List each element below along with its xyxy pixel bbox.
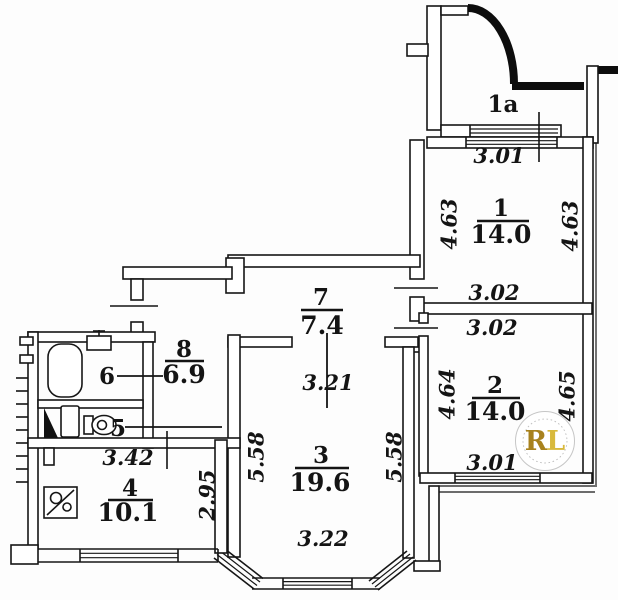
fixtures: [44, 330, 116, 518]
room2-dim-left: 4.64: [435, 368, 460, 419]
room3-dim-left: 5.58: [244, 431, 269, 483]
wall: [407, 44, 428, 56]
room1-number: 1: [493, 195, 509, 222]
wall: [427, 6, 441, 130]
hatch-bracket: [20, 355, 33, 363]
room2-dim-right: 4.65: [555, 370, 580, 421]
wall-bath-wc: [38, 400, 143, 408]
kitchen-door-leaf: [44, 448, 54, 465]
kitchen-window: [38, 549, 218, 562]
bay-chamfer-window: [214, 558, 254, 589]
room7-area: 7.4: [300, 311, 344, 340]
wall: [441, 6, 468, 15]
wall-foot: [414, 561, 440, 571]
watermark-logo: RL: [516, 412, 575, 471]
shower-tray-icon: [61, 406, 79, 437]
corridor-walls: [110, 255, 420, 347]
room1-area: 14.0: [471, 220, 532, 249]
room5-number: 5: [110, 415, 126, 442]
bay-window: [214, 548, 416, 591]
room4-area: 10.1: [98, 498, 159, 527]
neighbor-wall: [429, 486, 439, 570]
wall: [419, 336, 428, 476]
room1-dim-top: 3.01: [473, 143, 524, 168]
room3-area: 19.6: [290, 468, 351, 497]
room2-dim-bottom: 3.01: [466, 450, 517, 475]
watermark-letters: RL: [525, 426, 565, 457]
wall: [587, 66, 598, 143]
floor-plan-page: 1a 3.01 1 14.0 4.63 4.63 3.02 3.02 2 14.…: [0, 0, 618, 600]
lower-right-boundary: [414, 486, 595, 571]
balcony-number: 1a: [488, 91, 519, 118]
room2-dim-top: 3.02: [466, 315, 517, 340]
room1-dim-right: 4.63: [558, 200, 583, 251]
room3-dim-bottom: 3.22: [297, 526, 348, 551]
door-swing-shade: [44, 408, 58, 438]
wall: [228, 255, 420, 267]
room2-number: 2: [487, 372, 503, 399]
room2-area: 14.0: [465, 397, 526, 426]
balcony-curved-parapet: [468, 8, 514, 84]
room3-number: 3: [313, 442, 329, 469]
wall: [143, 342, 153, 448]
balcony-window: [441, 125, 561, 137]
wall: [123, 267, 232, 279]
room8-number: 8: [176, 336, 192, 363]
floor-plan: 1a 3.01 1 14.0 4.63 4.63 3.02 3.02 2 14.…: [0, 0, 618, 600]
wall: [131, 279, 143, 300]
room3-dim-right: 5.58: [382, 431, 407, 483]
room1-dim-bottom: 3.02: [468, 280, 519, 305]
stove-icon: [44, 487, 77, 518]
wall: [419, 313, 428, 323]
balcony-walls: [407, 6, 618, 143]
bay-chamfer-window: [223, 548, 263, 579]
hatch-bracket: [20, 337, 33, 345]
window: [441, 125, 561, 137]
corridor-dim-321: 3.21: [302, 370, 353, 395]
room1-dim-left: 4.63: [437, 198, 462, 249]
room6-number: 6: [99, 363, 115, 390]
wall-step: [11, 545, 38, 564]
room4-dim-right: 2.95: [195, 469, 220, 521]
room8-area: 6.9: [162, 360, 206, 389]
bathtub-icon: [48, 344, 82, 397]
kitchen-dim-top: 3.42: [102, 445, 153, 470]
wall: [385, 337, 418, 347]
room7-number: 7: [313, 284, 329, 311]
